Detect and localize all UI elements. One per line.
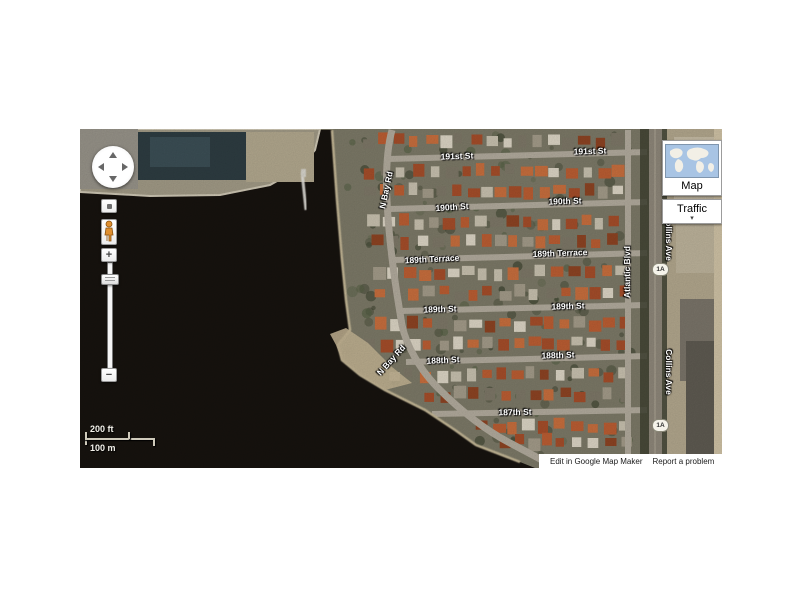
map-button-label: Map xyxy=(681,180,702,192)
traffic-button-label: Traffic xyxy=(677,203,707,215)
world-map-thumbnail-icon xyxy=(665,144,719,178)
pan-up-icon[interactable] xyxy=(109,152,117,158)
map-canvas[interactable]: + − 200 ft 100 m Map Traffic ▾ xyxy=(80,129,722,468)
pan-down-icon[interactable] xyxy=(109,176,117,182)
pegman-icon xyxy=(103,220,115,242)
recenter-button[interactable] xyxy=(101,199,117,213)
pan-left-icon[interactable] xyxy=(98,163,104,171)
satellite-imagery xyxy=(80,129,722,468)
chevron-down-icon: ▾ xyxy=(663,215,721,222)
zoom-in-button[interactable]: + xyxy=(101,248,117,262)
recenter-dot-icon xyxy=(107,204,112,209)
traffic-button[interactable]: Traffic ▾ xyxy=(662,199,722,224)
map-view-button[interactable]: Map xyxy=(662,140,722,196)
report-problem-link[interactable]: Report a problem xyxy=(648,457,720,466)
footer-bar: Edit in Google Map Maker Report a proble… xyxy=(539,454,722,468)
clipped-attribution-text: K xyxy=(719,457,722,466)
layer-widget: Map Traffic ▾ xyxy=(662,140,722,224)
edit-map-maker-link[interactable]: Edit in Google Map Maker xyxy=(545,457,648,466)
pan-control[interactable] xyxy=(92,146,134,188)
pegman-button[interactable] xyxy=(101,219,117,245)
zoom-out-button[interactable]: − xyxy=(101,368,117,382)
zoom-slider-handle[interactable] xyxy=(101,274,119,285)
pan-right-icon[interactable] xyxy=(122,163,128,171)
